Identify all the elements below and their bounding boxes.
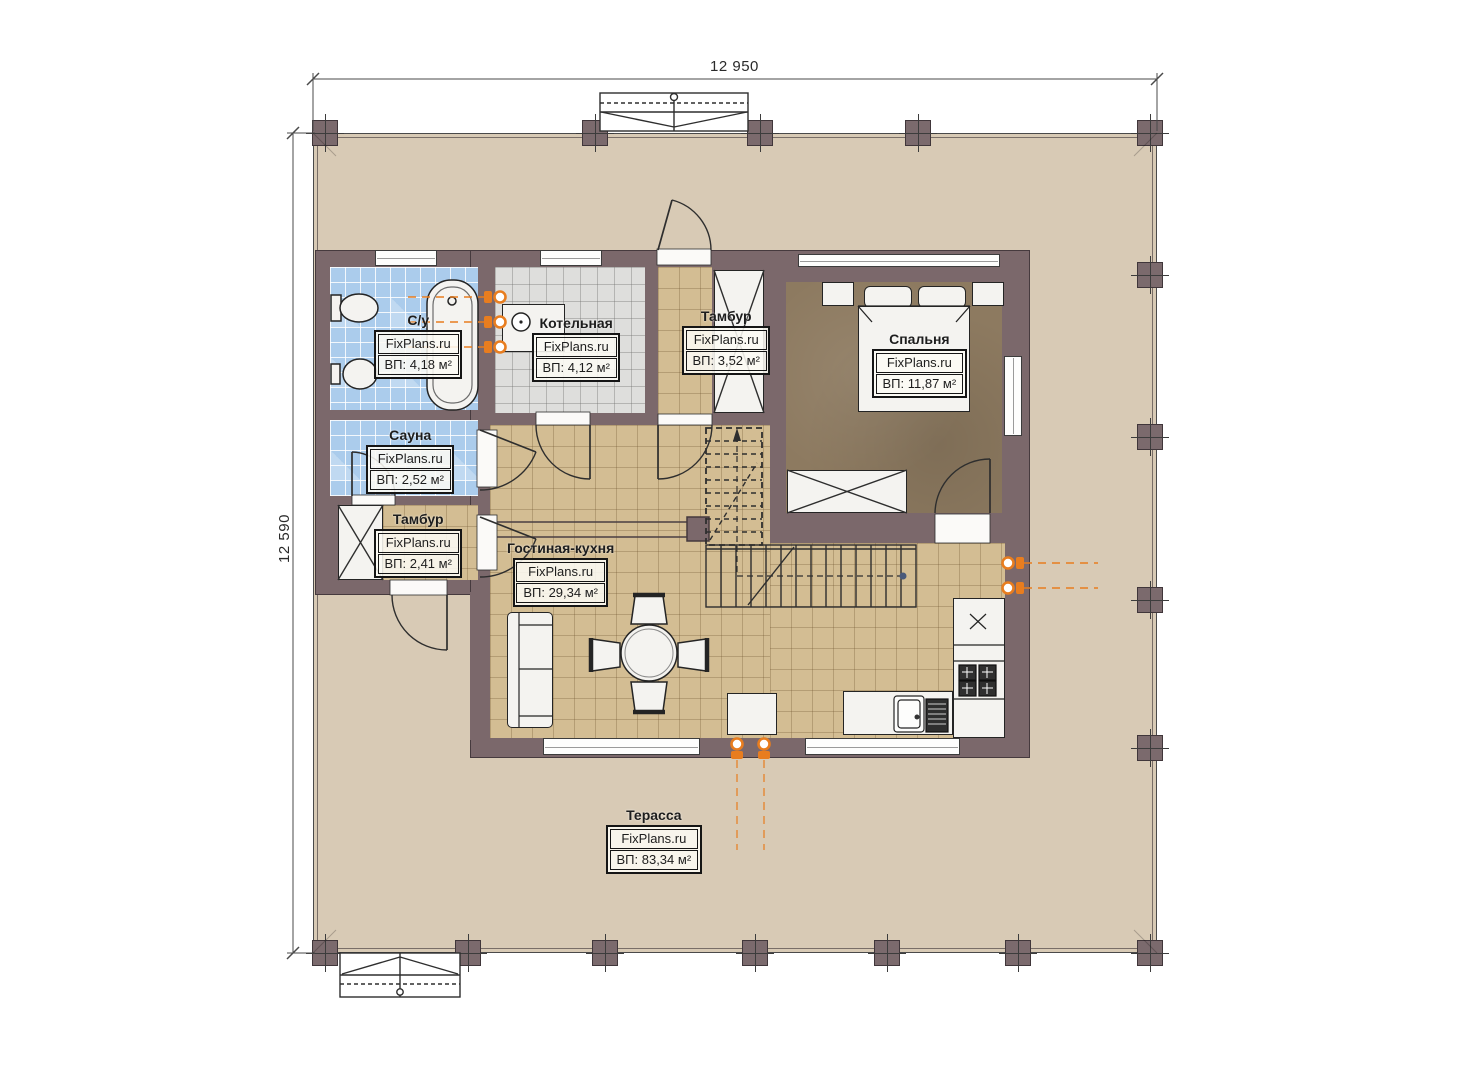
kitchen-island [727, 693, 777, 735]
room-name: Спальня [889, 332, 949, 347]
brand-label: FixPlans.ru [536, 337, 617, 357]
terrace-column [312, 940, 338, 966]
terrace-column [1137, 262, 1163, 288]
kitchen-counter-south [843, 691, 953, 735]
brand-label: FixPlans.ru [686, 330, 767, 350]
kitchen-counter-east [953, 598, 1005, 738]
area-label: ВП: 11,87 м² [876, 374, 964, 394]
terrace-column [874, 940, 900, 966]
terrace-column [742, 940, 768, 966]
room-name: Тамбур [701, 309, 752, 324]
sofa [507, 612, 553, 728]
room-name: С/у [407, 313, 429, 328]
brand-label: FixPlans.ru [610, 829, 699, 849]
room-name: Терасса [626, 808, 682, 823]
window-gostinaya-south-left [543, 738, 700, 755]
terrace-column [1137, 120, 1163, 146]
nightstand-right [972, 282, 1004, 306]
terrace-column [582, 120, 608, 146]
area-label: ВП: 2,41 м² [378, 554, 459, 574]
room-label-spalnya: Спальня FixPlans.ru ВП: 11,87 м² [872, 332, 967, 398]
area-label: ВП: 3,52 м² [686, 351, 767, 371]
terrace-column [1137, 735, 1163, 761]
brand-label: FixPlans.ru [370, 449, 451, 469]
window-su [375, 250, 437, 266]
terrace-column [1137, 940, 1163, 966]
pillow [864, 286, 912, 308]
window-kitchen-south [805, 738, 960, 755]
window-spalnya-east [1004, 356, 1022, 436]
room-label-terrassa: Терасса FixPlans.ru ВП: 83,34 м² [606, 808, 702, 874]
window-kotelnaya [540, 250, 602, 266]
area-label: ВП: 29,34 м² [516, 583, 605, 603]
terrace-column [1137, 424, 1163, 450]
dimension-top-label: 12 950 [710, 58, 759, 75]
room-label-tambur-bottom: Тамбур FixPlans.ru ВП: 2,41 м² [374, 512, 462, 578]
brand-label: FixPlans.ru [876, 353, 964, 373]
brand-label: FixPlans.ru [378, 334, 459, 354]
terrace-column [592, 940, 618, 966]
nightstand-left [822, 282, 854, 306]
room-name: Тамбур [393, 512, 444, 527]
area-label: ВП: 4,12 м² [536, 358, 617, 378]
room-label-tambur-top: Тамбур FixPlans.ru ВП: 3,52 м² [682, 309, 770, 375]
room-name: Гостиная-кухня [507, 541, 614, 556]
terrace-column [747, 120, 773, 146]
room-label-kotelnaya: Котельная FixPlans.ru ВП: 4,12 м² [532, 316, 620, 382]
dimension-left-label: 12 590 [276, 514, 293, 563]
terrace-column [1137, 587, 1163, 613]
room-name: Котельная [540, 316, 613, 331]
terrace-column [1005, 940, 1031, 966]
bedroom-wardrobe [787, 470, 907, 513]
area-label: ВП: 83,34 м² [610, 850, 699, 870]
terrace-column [455, 940, 481, 966]
room-name: Сауна [389, 428, 431, 443]
terrace-column [312, 120, 338, 146]
area-label: ВП: 4,18 м² [378, 355, 459, 375]
pillow [918, 286, 966, 308]
entry-steps-top [600, 93, 748, 131]
area-label: ВП: 2,52 м² [370, 470, 451, 490]
brand-label: FixPlans.ru [378, 533, 459, 553]
entry-steps-bottom [340, 953, 460, 997]
floor-plan-canvas: 12 950 12 590 С/у FixPlans.ru ВП: 4,18 м… [0, 0, 1473, 1080]
room-label-sauna: Сауна FixPlans.ru ВП: 2,52 м² [366, 428, 454, 494]
brand-label: FixPlans.ru [516, 562, 605, 582]
room-label-gostinaya: Гостиная-кухня FixPlans.ru ВП: 29,34 м² [507, 541, 614, 607]
terrace-column [905, 120, 931, 146]
window-spalnya-north [798, 254, 1000, 267]
room-label-su: С/у FixPlans.ru ВП: 4,18 м² [374, 313, 462, 379]
